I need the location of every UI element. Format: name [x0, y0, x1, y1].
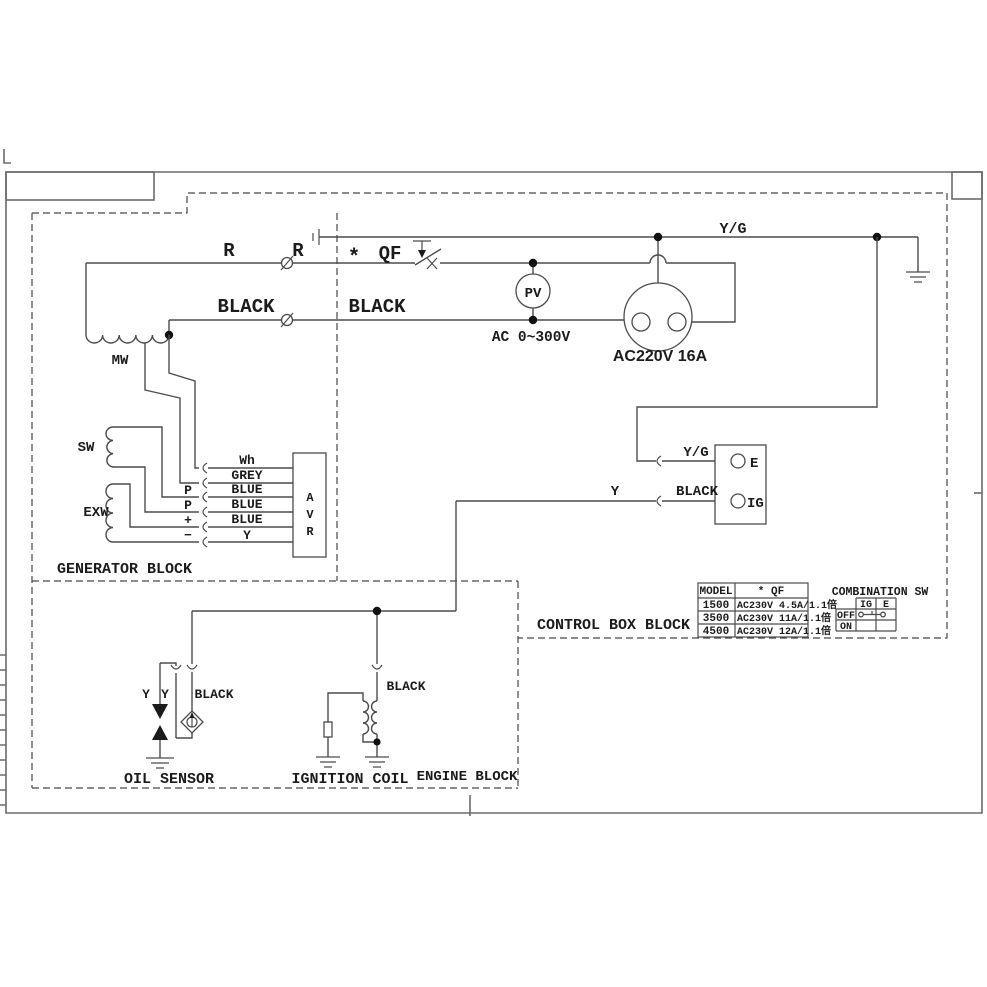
label-mw: MW: [112, 353, 129, 369]
model-table-row1-model: 1500: [703, 600, 729, 612]
label-black-right: BLACK: [348, 296, 406, 318]
label-r-right: R: [292, 240, 304, 262]
qf-breaker-symbol: [413, 241, 441, 269]
label-black-left: BLACK: [217, 296, 275, 318]
ac-socket: [624, 283, 692, 351]
label-pin-p2: P: [184, 498, 192, 513]
model-table-row1-qf: AC230V 4.5A/1.1倍: [737, 598, 837, 612]
avr-connector-arcs: [203, 463, 207, 547]
yg-start-symbol: [313, 229, 319, 245]
label-yg-e: Y/G: [683, 445, 708, 461]
model-table-header-model: MODEL: [699, 586, 732, 598]
ignition-connector-arc: [372, 665, 382, 669]
frame-corner-mark: [4, 149, 11, 163]
wiring-diagram-page: MODEL * QF 1500 AC230V 4.5A/1.1倍 3500 AC…: [0, 0, 987, 987]
terminal-ig-pin: [731, 494, 745, 508]
avr-box: [293, 453, 326, 557]
label-r-left: R: [223, 240, 235, 262]
terminal-e-pin: [731, 454, 745, 468]
label-pin-p1: P: [184, 483, 192, 498]
label-qf-star: *: [348, 247, 361, 270]
model-table: MODEL * QF 1500 AC230V 4.5A/1.1倍 3500 AC…: [698, 583, 837, 638]
combination-sw-table: COMBINATION SW IG E OFF ON: [832, 586, 929, 633]
combination-sw-off-link: [859, 611, 886, 617]
label-terminal-e: E: [750, 456, 758, 472]
label-control-block: CONTROL BOX BLOCK: [537, 617, 690, 634]
label-oil-black: BLACK: [194, 687, 233, 702]
model-table-row2-model: 3500: [703, 613, 729, 625]
frame-ticks-left: [0, 655, 6, 805]
label-ign-black: BLACK: [386, 679, 425, 694]
label-pin-plus: +: [184, 513, 192, 528]
ignition-primary-winding: [372, 701, 378, 734]
oil-connector-arc-1: [187, 665, 197, 669]
ground-spark-plug: [316, 757, 340, 767]
combination-sw-col-e: E: [883, 600, 889, 611]
label-oil-sensor: OIL SENSOR: [124, 771, 214, 788]
label-black-ig: BLACK: [676, 484, 719, 500]
label-wire-wh: Wh: [239, 453, 255, 468]
label-qf: QF: [379, 243, 402, 265]
label-avr-a: A: [306, 491, 314, 505]
label-wire-blue2: BLUE: [231, 497, 262, 512]
label-sw: SW: [78, 440, 95, 456]
label-pv: PV: [525, 286, 542, 302]
ground-oil-sensor: [146, 758, 174, 768]
label-avr-r: R: [306, 525, 314, 539]
connector-black-line: [281, 313, 293, 327]
label-pv-range: AC 0~300V: [492, 330, 571, 346]
label-wire-blue1: BLUE: [231, 482, 262, 497]
combination-sw-row-off: OFF: [837, 611, 855, 622]
label-engine-block: ENGINE BLOCK: [417, 769, 518, 785]
drawing-frame: [0, 149, 982, 816]
label-ignition-coil: IGNITION COIL: [291, 771, 408, 788]
label-terminal-ig: IG: [747, 496, 764, 512]
label-socket: AC220V 16A: [613, 348, 708, 365]
label-y-ig: Y: [611, 484, 620, 500]
spark-plug-resistor: [324, 722, 332, 737]
engine-internals: [146, 607, 389, 768]
label-wire-y: Y: [243, 528, 251, 543]
generator-internals: [106, 335, 326, 557]
frame-notch-top-left: [6, 172, 154, 200]
mw-winding: [86, 335, 169, 343]
ignition-secondary-winding: [363, 701, 369, 734]
label-oil-y2: Y: [161, 687, 169, 702]
label-yg-top: Y/G: [719, 221, 746, 238]
label-generator-block: GENERATOR BLOCK: [57, 561, 192, 578]
model-table-row3-qf: AC230V 12A/1.1倍: [737, 624, 831, 638]
label-wire-blue3: BLUE: [231, 512, 262, 527]
combination-sw-row-on: ON: [840, 622, 852, 633]
oil-level-valve: [152, 704, 168, 740]
label-pin-minus: −: [184, 528, 192, 543]
label-exw: EXW: [83, 505, 109, 521]
block-boundaries: [32, 193, 947, 788]
combination-sw-title: COMBINATION SW: [832, 586, 929, 599]
ground-ignition-coil: [365, 757, 389, 767]
ground-right: [906, 272, 930, 282]
label-avr-v: V: [306, 508, 314, 522]
model-table-row2-qf: AC230V 11A/1.1倍: [737, 611, 831, 625]
sw-winding: [106, 427, 113, 467]
combination-sw-col-ig: IG: [860, 600, 872, 611]
label-wire-grey: GREY: [231, 468, 262, 483]
model-table-header-qf: * QF: [758, 586, 784, 598]
generator-wiring-diagram: MODEL * QF 1500 AC230V 4.5A/1.1倍 3500 AC…: [0, 0, 987, 987]
model-table-row3-model: 4500: [703, 626, 729, 638]
frame-notch-top-right: [952, 172, 982, 199]
connector-r-line: [281, 256, 293, 270]
label-oil-y1: Y: [142, 687, 150, 702]
terminal-connector-arcs: [657, 456, 661, 506]
